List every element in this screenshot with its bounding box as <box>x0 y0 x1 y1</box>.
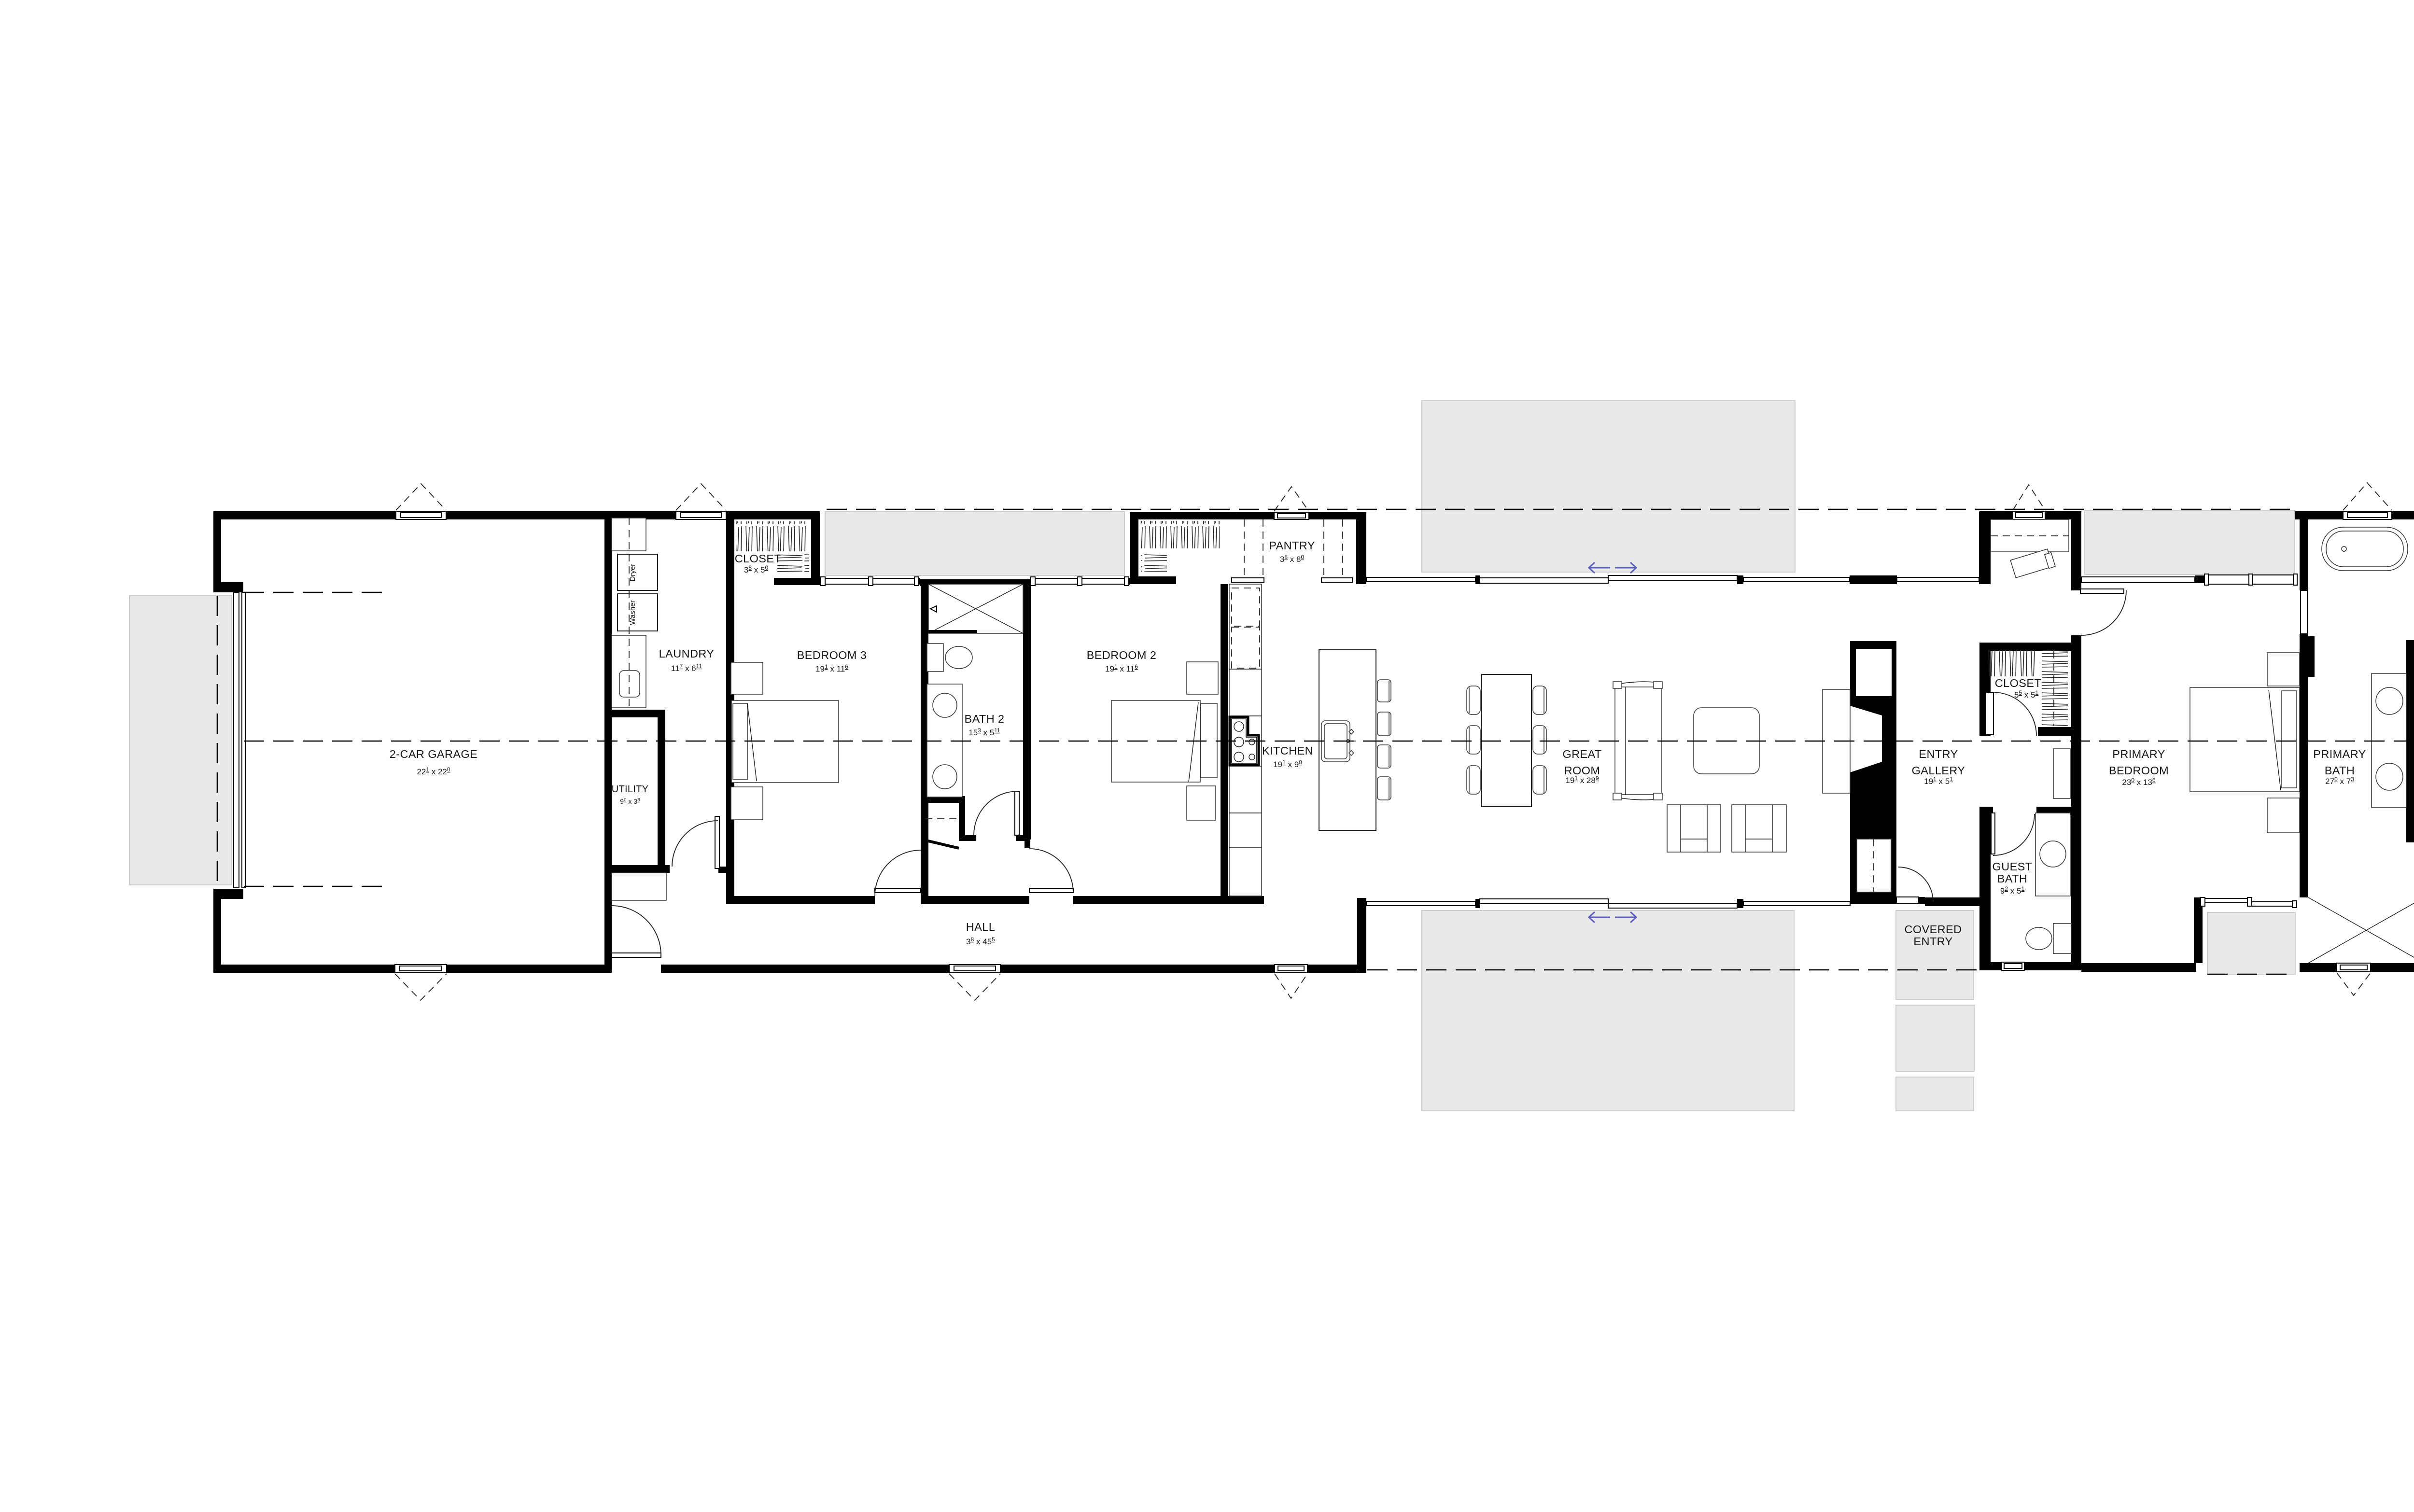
svg-text:191 x 51: 191 x 51 <box>1924 776 1953 786</box>
svg-text:191 x 289: 191 x 289 <box>1565 775 1599 785</box>
svg-text:92 x 51: 92 x 51 <box>2000 885 2025 896</box>
svg-text:55 x 51: 55 x 51 <box>2014 689 2039 700</box>
svg-text:KITCHEN: KITCHEN <box>1262 744 1313 757</box>
svg-text:BEDROOM: BEDROOM <box>2109 764 2169 777</box>
svg-text:221 x 220: 221 x 220 <box>417 766 450 776</box>
svg-text:BATH: BATH <box>1997 872 2028 885</box>
svg-text:PRIMARY: PRIMARY <box>2313 748 2366 760</box>
svg-text:2-CAR GARAGE: 2-CAR GARAGE <box>390 748 477 760</box>
svg-text:GUEST: GUEST <box>1993 860 2033 873</box>
svg-text:ENTRY: ENTRY <box>1913 935 1952 948</box>
svg-text:Washer: Washer <box>629 600 637 625</box>
svg-text:PANTRY: PANTRY <box>1269 539 1315 552</box>
svg-text:Dryer: Dryer <box>629 564 637 582</box>
svg-text:CLOSET: CLOSET <box>735 552 781 565</box>
svg-text:UTILITY: UTILITY <box>612 784 649 795</box>
svg-text:90 x 33: 90 x 33 <box>620 798 640 805</box>
svg-text:38 x 50: 38 x 50 <box>744 564 769 574</box>
svg-text:191 x 116: 191 x 116 <box>815 663 848 673</box>
svg-text:LAUNDRY: LAUNDRY <box>659 647 715 660</box>
svg-text:CLOSET: CLOSET <box>1995 677 2041 689</box>
svg-text:230 x 136: 230 x 136 <box>2122 777 2155 787</box>
svg-text:BEDROOM 3: BEDROOM 3 <box>797 649 867 661</box>
svg-text:BEDROOM 2: BEDROOM 2 <box>1087 649 1157 661</box>
svg-text:ROOM: ROOM <box>1564 764 1600 777</box>
svg-text:ENTRY: ENTRY <box>1919 748 1958 760</box>
svg-text:COVERED: COVERED <box>1904 923 1962 936</box>
svg-text:BATH: BATH <box>2325 764 2355 777</box>
svg-text:38 x 80: 38 x 80 <box>1280 554 1305 564</box>
svg-text:GREAT: GREAT <box>1562 748 1601 760</box>
svg-text:PRIMARY: PRIMARY <box>2112 748 2165 760</box>
svg-text:HALL: HALL <box>966 921 995 933</box>
svg-text:270 x 73: 270 x 73 <box>2325 776 2354 786</box>
svg-text:BATH 2: BATH 2 <box>965 713 1005 725</box>
svg-text:191 x 90: 191 x 90 <box>1273 759 1302 769</box>
svg-text:38 x 455: 38 x 455 <box>966 936 995 946</box>
svg-text:191 x 116: 191 x 116 <box>1105 663 1138 673</box>
svg-text:GALLERY: GALLERY <box>1912 764 1965 777</box>
